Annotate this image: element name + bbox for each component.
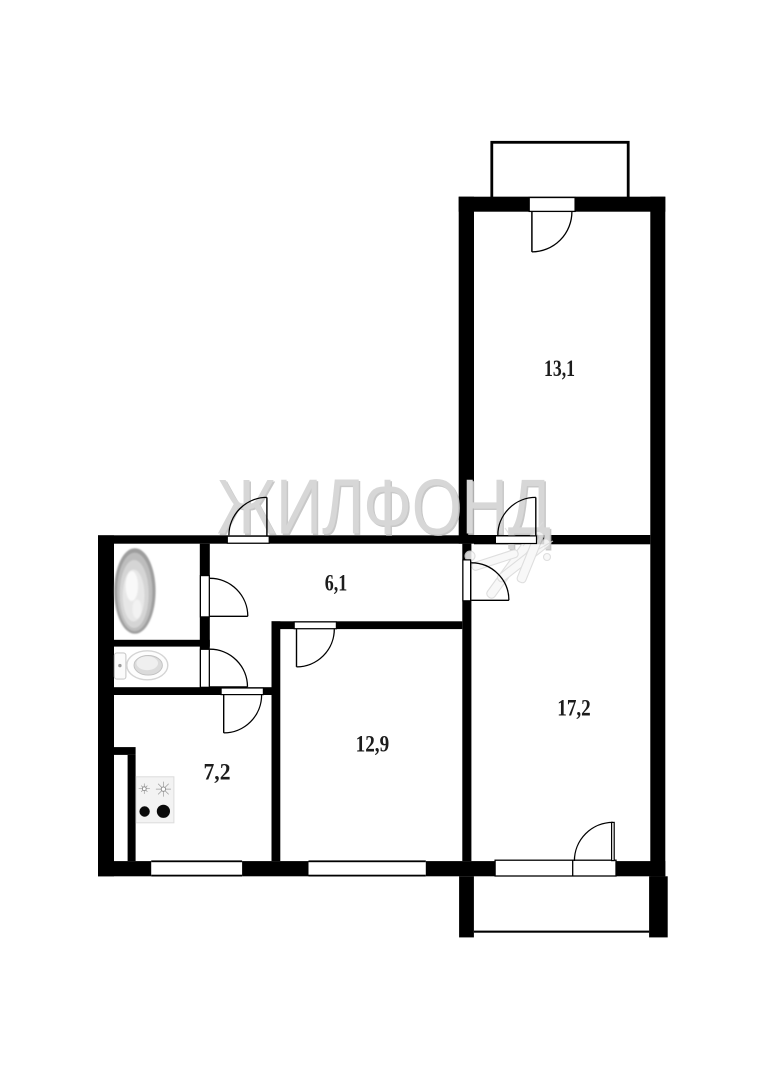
svg-text:7,2: 7,2 <box>204 760 231 785</box>
svg-text:17,2: 17,2 <box>557 696 591 721</box>
svg-text:12,9: 12,9 <box>356 732 390 757</box>
svg-text:6,1: 6,1 <box>325 570 348 595</box>
svg-text:13,1: 13,1 <box>544 356 575 381</box>
